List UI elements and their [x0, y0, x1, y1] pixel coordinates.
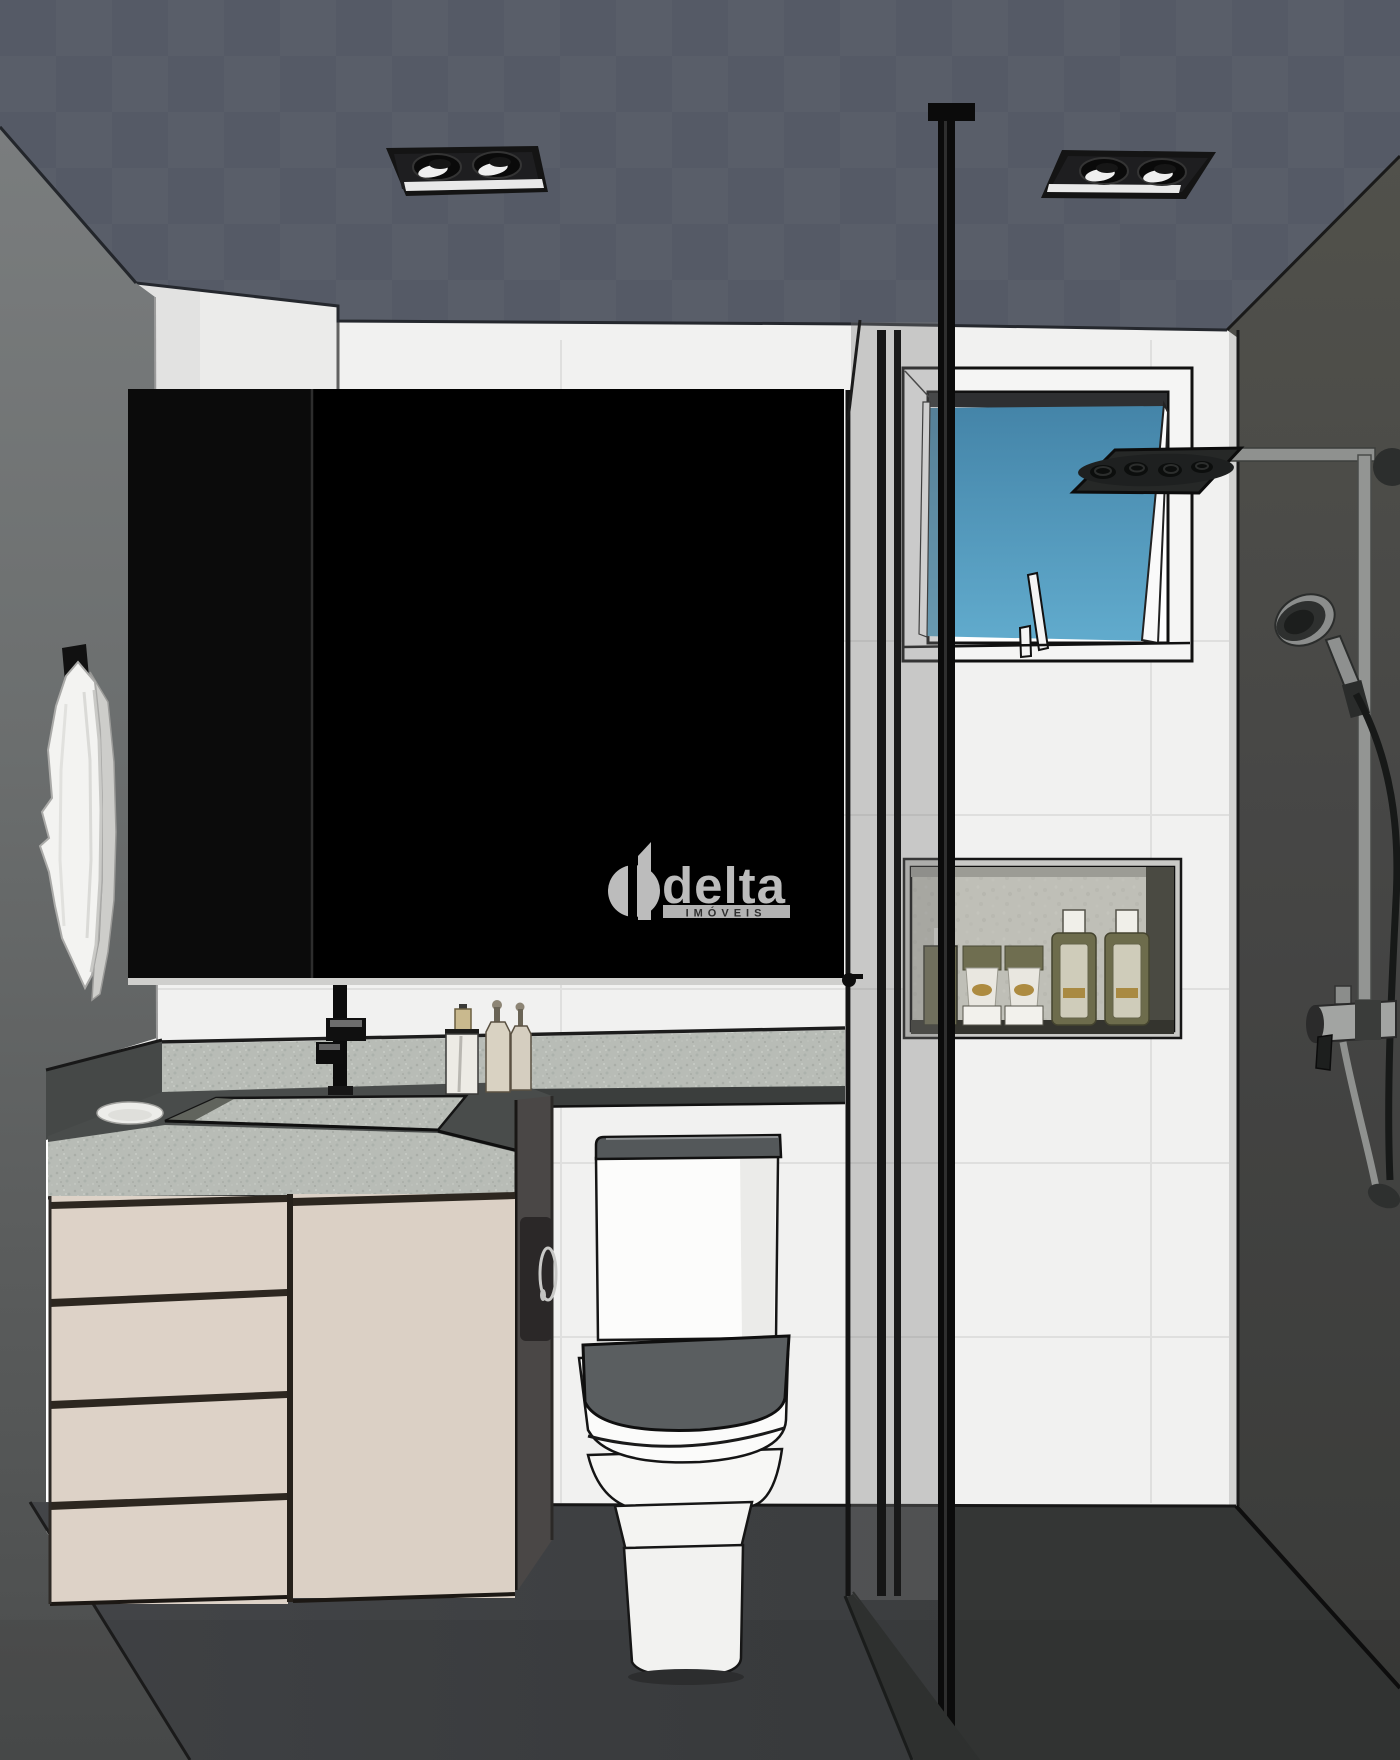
svg-text:IMÓVEIS: IMÓVEIS: [686, 907, 767, 920]
